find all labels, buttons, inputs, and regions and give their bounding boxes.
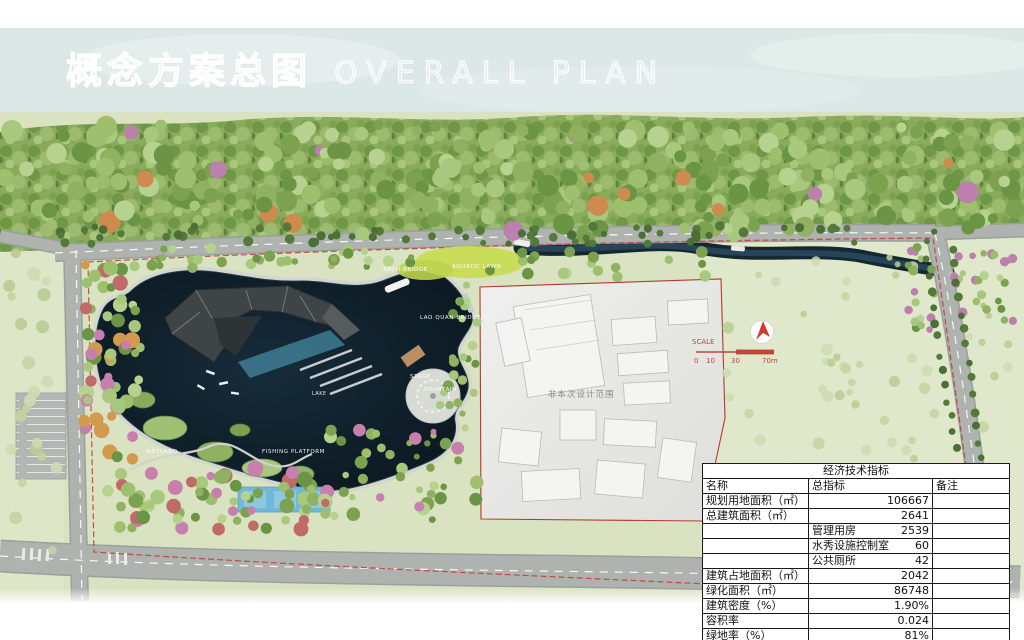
page-title-en: OVERALL PLAN: [334, 56, 666, 91]
table-row: 建筑密度（%）1.90%: [703, 599, 1010, 614]
col-header-total: 总指标: [809, 479, 933, 494]
table-cell: [703, 539, 809, 554]
table-row: 公共厕所42: [703, 554, 1010, 569]
table-cell: [933, 584, 1010, 599]
indicator-table: 经济技术指标 名称 总指标 备注 规划用地面积（㎡）106667总建筑面积（㎡）…: [702, 463, 1009, 640]
table-cell: [933, 524, 1010, 539]
north-arrow-icon: [751, 321, 774, 344]
label-stage: STAGE: [410, 374, 431, 380]
table-cell: 建筑密度（%）: [703, 599, 809, 614]
table-cell: [703, 524, 809, 539]
label-lao-quan-bridge: LAO QUAN BRIDGE: [420, 315, 481, 321]
table-row: 规划用地面积（㎡）106667: [703, 494, 1010, 509]
table-cell: 1.90%: [809, 599, 933, 614]
table-cell: [703, 554, 809, 569]
table-cell: 86748: [809, 584, 933, 599]
table-cell: 公共厕所42: [809, 554, 933, 569]
table-cell: [933, 629, 1010, 640]
table-cell: 0.024: [809, 614, 933, 629]
col-header-name: 名称: [703, 479, 809, 494]
table-cell: 2042: [809, 569, 933, 584]
table-cell: 总建筑面积（㎡）: [703, 509, 809, 524]
table-cell: 81%: [809, 629, 933, 640]
overall-plan-page: SCALE 0 10 30 70m ARCH BRIDGE AQUATIC LA…: [0, 0, 1024, 640]
table-row: 总建筑面积（㎡）2641: [703, 509, 1010, 524]
label-fishing-platform: FISHING PLATFORM: [262, 449, 325, 455]
table-cell: [933, 554, 1010, 569]
scale-tick-30: 30: [731, 357, 740, 365]
scale-tick-70: 70m: [762, 357, 778, 365]
table-row: 水秀设施控制室60: [703, 539, 1010, 554]
scale-tick-0: 0: [694, 357, 698, 365]
table-row: 建筑占地面积（㎡）2042: [703, 569, 1010, 584]
label-arch-bridge: ARCH BRIDGE: [383, 267, 428, 273]
scale-label: SCALE: [692, 338, 714, 346]
table-title-row: 经济技术指标: [703, 464, 1010, 479]
table-cell: [933, 599, 1010, 614]
col-header-note: 备注: [933, 479, 1010, 494]
out-of-scope-complex: [480, 279, 725, 521]
scale-tick-10: 10: [706, 357, 715, 365]
table-cell: [933, 509, 1010, 524]
table-cell: 水秀设施控制室60: [809, 539, 933, 554]
table-cell: [933, 614, 1010, 629]
table-cell: 2641: [809, 509, 933, 524]
table-cell: 管理用房2539: [809, 524, 933, 539]
table-cell: 容积率: [703, 614, 809, 629]
label-aquatic-lawn: AQUATIC LAWN: [452, 264, 501, 270]
table-cell: 规划用地面积（㎡）: [703, 494, 809, 509]
label-fountain: FOUNTAIN: [424, 387, 457, 393]
page-title: 概念方案总图 OVERALL PLAN: [66, 42, 666, 94]
indicator-table-body: 规划用地面积（㎡）106667总建筑面积（㎡）2641管理用房2539水秀设施控…: [703, 494, 1010, 640]
page-title-zh: 概念方案总图: [66, 42, 312, 94]
label-lake: LAKE: [312, 391, 327, 397]
table-cell: 建筑占地面积（㎡）: [703, 569, 809, 584]
table-cell: [933, 569, 1010, 584]
table-title: 经济技术指标: [703, 464, 1010, 479]
table-row: 管理用房2539: [703, 524, 1010, 539]
table-cell: [933, 539, 1010, 554]
table-cell: 106667: [809, 494, 933, 509]
table-row: 绿地率（%）81%: [703, 629, 1010, 640]
table-row: 容积率0.024: [703, 614, 1010, 629]
table-cell: 绿地率（%）: [703, 629, 809, 640]
label-scope-note: 非本次设计范围: [548, 389, 615, 400]
table-cell: [933, 494, 1010, 509]
label-wetland: WETLAND: [146, 449, 178, 455]
table-cell: 绿化面积（㎡）: [703, 584, 809, 599]
table-row: 绿化面积（㎡）86748: [703, 584, 1010, 599]
table-header-row: 名称 总指标 备注: [703, 479, 1010, 494]
